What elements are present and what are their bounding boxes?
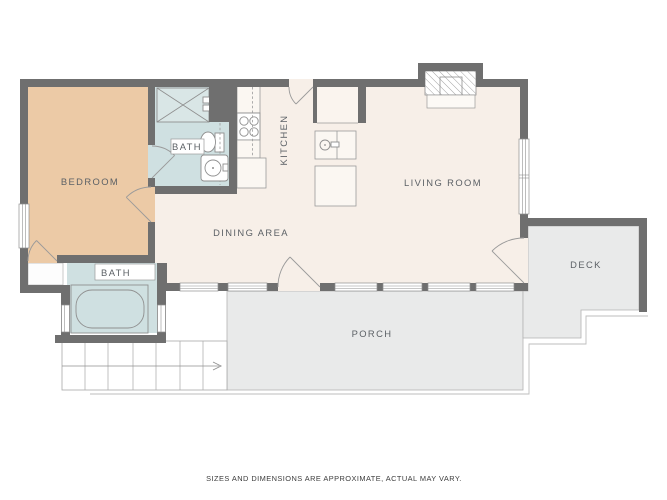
window	[476, 283, 514, 291]
window	[180, 283, 218, 291]
room-bedroom-floor	[28, 87, 148, 255]
closet-niche	[28, 263, 63, 285]
room-deck-floor	[523, 226, 639, 338]
bath-upper-label: BATH	[172, 141, 202, 152]
closet-fixture-icon	[203, 105, 210, 111]
window-row-bottom	[180, 283, 514, 291]
kitchen-counter	[237, 140, 260, 158]
floorplan-drawing: BEDROOM BATH KITCHEN DINING AREA LIVING …	[0, 0, 667, 500]
window	[383, 283, 422, 291]
bedroom-label: BEDROOM	[61, 176, 119, 187]
kitchen-label: KITCHEN	[278, 115, 289, 166]
deck-label: DECK	[570, 259, 602, 270]
bath-lower-label: BATH	[101, 267, 131, 278]
closet-fixture-icon	[203, 97, 210, 103]
fireplace-icon	[425, 71, 476, 108]
kitchen-counter	[237, 158, 266, 188]
kitchen-counter	[237, 85, 260, 113]
stair-treads	[62, 341, 227, 390]
entry-closet-floor	[317, 87, 358, 123]
fireplace-hearth	[427, 95, 475, 108]
floorplan-page: BEDROOM BATH KITCHEN DINING AREA LIVING …	[0, 0, 667, 500]
toilet-tank	[215, 133, 224, 152]
sink-faucet-icon	[223, 164, 228, 171]
window	[19, 204, 29, 248]
window	[228, 283, 267, 291]
window	[158, 305, 166, 332]
window	[428, 283, 470, 291]
room-porch-floor	[227, 291, 523, 390]
stairs	[62, 341, 227, 390]
kitchen-island-lower	[315, 166, 356, 206]
stove-icon	[237, 113, 260, 140]
window	[519, 139, 529, 214]
living-room-label: LIVING ROOM	[404, 177, 482, 188]
disclaimer-text: SIZES AND DIMENSIONS ARE APPROXIMATE, AC…	[206, 474, 462, 483]
island-faucet-icon	[331, 142, 339, 147]
window	[335, 283, 377, 291]
window	[62, 305, 70, 332]
dining-label: DINING AREA	[213, 227, 289, 238]
porch-label: PORCH	[352, 328, 393, 339]
